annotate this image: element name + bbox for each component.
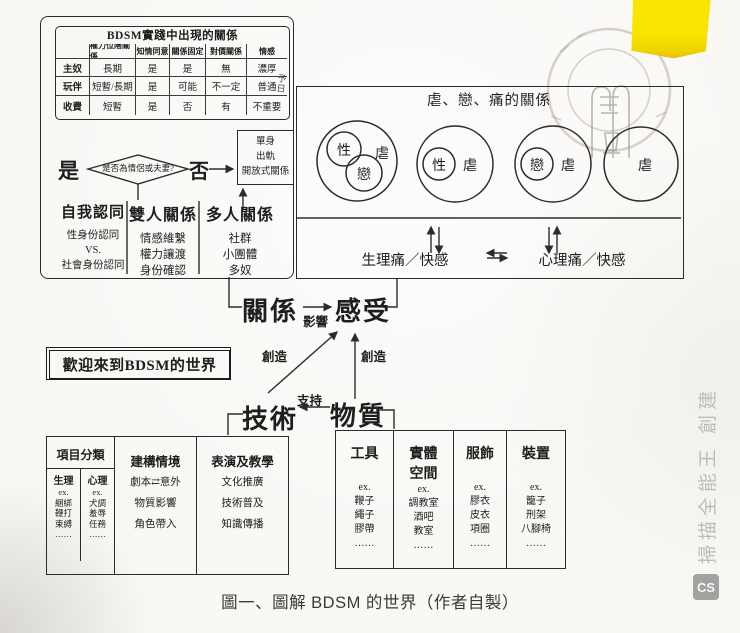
cell: 短暫 — [90, 96, 136, 115]
cell: 可能 — [170, 77, 206, 96]
non-couple-box: 單身 出軌 開放式關係 — [237, 130, 294, 185]
col-item: 技術普及 — [197, 491, 288, 512]
group-title: 多人關係 — [201, 201, 279, 225]
cell: 短暫/長期 — [90, 77, 136, 96]
col-item: ex. — [454, 481, 506, 495]
flow-yes-label: 是 — [58, 155, 79, 185]
yellow-sticky-note — [629, 0, 711, 61]
cell: 不重要 — [247, 96, 287, 115]
col-header: 情感 — [247, 44, 287, 59]
col-item: 刑架 — [507, 509, 565, 523]
col-title: 工具 — [336, 431, 393, 481]
technique-table: 項目分類 生理 ex. 綑綁 鞭打 束縛 …… 心理 ex. 犬調 羞辱 任務 … — [46, 436, 289, 575]
classification-subcolumns: 生理 ex. 綑綁 鞭打 束縛 …… 心理 ex. 犬調 羞辱 任務 …… — [47, 469, 114, 561]
subcol-item: 束縛 — [47, 519, 80, 530]
venn-label-love: 戀 — [527, 155, 547, 175]
technique-col-classification: 項目分類 生理 ex. 綑綁 鞭打 束縛 …… 心理 ex. 犬調 羞辱 任務 … — [47, 437, 114, 574]
group-item: 社會身份認同 — [57, 258, 129, 273]
influence-label: 影響 — [303, 311, 328, 330]
technique-col-performance: 表演及教學 文化推廣 技術普及 知識傳播 — [196, 437, 288, 574]
technique-col-context: 建構情境 劇本⇄意外 物質影響 角色帶入 — [114, 437, 196, 574]
col-title: 表演及教學 — [197, 437, 288, 470]
subcol-item: 羞辱 — [81, 508, 114, 519]
cell: 有 — [206, 96, 247, 115]
group-item: 小團體 — [201, 247, 279, 263]
venn-label-sex: 性 — [429, 155, 449, 175]
row-label: 收費 — [56, 96, 90, 115]
subcol-item: 綑綁 — [47, 498, 80, 509]
psychological-pain-label: 心理痛／快感 — [507, 249, 657, 270]
material-col-clothing: 服飾 ex. 膠衣 皮衣 項圈 …… — [453, 431, 506, 568]
col-header: 對價關係 — [206, 44, 247, 59]
node-material: 物質 — [330, 396, 386, 433]
row-label: 主奴 — [56, 59, 90, 77]
material-col-tools: 工具 ex. 鞭子 繩子 膠帶 …… — [336, 431, 393, 568]
handwritten-margin-note: 予日 — [276, 73, 294, 95]
col-item: 知識傳播 — [197, 512, 288, 533]
venn-label-sadism: 虐 — [558, 155, 578, 175]
subcol-item: 犬調 — [81, 498, 114, 509]
group-self-identity: 自我認同 性身份認同 VS. 社會身份認同 — [57, 201, 129, 273]
col-item: 物質影響 — [115, 491, 196, 512]
col-header: 權力位階關係 — [90, 44, 136, 59]
col-item: 項圈 — [454, 523, 506, 537]
col-item: …… — [454, 537, 506, 551]
col-item: ex. — [336, 481, 393, 495]
cell: 是 — [136, 59, 170, 77]
group-pair-relation: 雙人關係 情感維繫 權力讓渡 身份確認 — [129, 201, 197, 279]
col-title: 建構情境 — [115, 437, 196, 470]
camscanner-watermark-text: 掃描全能王 創建 — [693, 385, 717, 565]
col-item: 八腳椅 — [507, 523, 565, 537]
col-item: 籠子 — [507, 495, 565, 509]
col-header: 關係固定 — [170, 44, 206, 59]
col-item: 繩子 — [336, 509, 393, 523]
cell: 是 — [136, 96, 170, 115]
subcol-item: ex. — [47, 487, 80, 498]
node-technique: 技術 — [242, 399, 298, 436]
cell: 無 — [206, 59, 247, 77]
relation-table-title: BDSM實踐中出現的關係 — [56, 27, 289, 44]
subcol-item: …… — [47, 529, 80, 540]
material-table: 工具 ex. 鞭子 繩子 膠帶 …… 實體空間 ex. 調教室 酒吧 教室 ……… — [335, 430, 566, 569]
group-item: 身份確認 — [129, 263, 197, 279]
group-item: 多奴 — [201, 263, 279, 279]
venn-label-sex: 性 — [334, 140, 354, 160]
figure-caption: 圖一、圖解 BDSM 的世界（作者自製） — [170, 589, 570, 613]
subcol-item: ex. — [81, 487, 114, 498]
material-col-devices: 裝置 ex. 籠子 刑架 八腳椅 …… — [506, 431, 565, 568]
col-header: 知情同意 — [136, 44, 170, 59]
group-item: 性身份認同 — [57, 228, 129, 243]
cell: 否 — [170, 96, 206, 115]
support-label: 支持 — [297, 390, 322, 409]
col-item: ex. — [394, 483, 453, 497]
col-item: 調教室 — [394, 497, 453, 511]
subcol-title: 心理 — [81, 472, 114, 487]
col-item: 劇本⇄意外 — [115, 470, 196, 491]
create-label-left: 創造 — [262, 346, 287, 365]
cell: 長期 — [90, 59, 136, 77]
decision-question: 是否為情侶或夫妻? — [93, 162, 183, 174]
non-couple-line: 出軌 — [238, 150, 293, 165]
group-item: 情感維繫 — [129, 231, 197, 247]
group-multi-relation: 多人關係 社群 小團體 多奴 — [201, 201, 279, 279]
subcol-item: 鞭打 — [47, 508, 80, 519]
col-title: 項目分類 — [47, 437, 114, 469]
col-item: 鞭子 — [336, 495, 393, 509]
row-label: 玩伴 — [56, 77, 90, 96]
flow-no-label: 否 — [189, 155, 209, 184]
col-title: 實體空間 — [407, 431, 441, 483]
col-item: 角色帶入 — [115, 512, 196, 533]
relation-table: BDSM實踐中出現的關係 權力位階關係 知情同意 關係固定 對價關係 情感 主奴… — [55, 26, 290, 120]
node-feeling: 感受 — [335, 291, 391, 328]
create-label-right: 創造 — [361, 346, 386, 365]
cell: 是 — [136, 77, 170, 96]
col-title: 裝置 — [507, 431, 565, 481]
subcol-physical: 生理 ex. 綑綁 鞭打 束縛 …… — [47, 469, 80, 561]
col-item: …… — [507, 537, 565, 551]
subcol-item: …… — [81, 529, 114, 540]
table-corner-cell — [56, 44, 90, 59]
venn-label-love: 戀 — [354, 164, 374, 184]
group-item: 社群 — [201, 231, 279, 247]
venn-label-sadism: 虐 — [460, 155, 480, 175]
col-item: 皮衣 — [454, 509, 506, 523]
group-item: 權力讓渡 — [129, 247, 197, 263]
welcome-box: 歡迎來到BDSM的世界 — [46, 347, 231, 380]
cell: 是 — [170, 59, 206, 77]
group-item: VS. — [57, 243, 129, 258]
material-col-space: 實體空間 ex. 調教室 酒吧 教室 …… — [393, 431, 453, 568]
col-item: ex. — [507, 481, 565, 495]
non-couple-line: 單身 — [238, 135, 293, 150]
col-item: 教室 — [394, 525, 453, 539]
sm-box-title: 虐、戀、痛的關係 — [296, 89, 682, 110]
group-title: 自我認同 — [57, 201, 129, 222]
subcol-item: 任務 — [81, 519, 114, 530]
venn-label-sadism: 虐 — [372, 143, 392, 163]
col-item: 膠帶 — [336, 523, 393, 537]
col-item: 文化推廣 — [197, 470, 288, 491]
relation-table-grid: 權力位階關係 知情同意 關係固定 對價關係 情感 主奴 長期 是 是 無 濃厚 … — [56, 44, 289, 115]
col-title: 服飾 — [454, 431, 506, 481]
group-title: 雙人關係 — [129, 201, 197, 225]
node-relation: 關係 — [242, 291, 298, 328]
physical-pain-label: 生理痛／快感 — [330, 249, 480, 270]
venn-label-sadism: 虐 — [635, 155, 655, 175]
subcol-title: 生理 — [47, 472, 80, 487]
subcol-psychological: 心理 ex. 犬調 羞辱 任務 …… — [80, 469, 114, 561]
non-couple-line: 開放式關係 — [238, 165, 293, 180]
cell: 不一定 — [206, 77, 247, 96]
col-item: 酒吧 — [394, 511, 453, 525]
welcome-text: 歡迎來到BDSM的世界 — [49, 350, 230, 379]
col-item: 膠衣 — [454, 495, 506, 509]
scanned-document-page: BDSM實踐中出現的關係 權力位階關係 知情同意 關係固定 對價關係 情感 主奴… — [0, 0, 740, 633]
col-item: …… — [394, 539, 453, 553]
camscanner-logo: CS — [693, 574, 719, 600]
col-item: …… — [336, 537, 393, 551]
